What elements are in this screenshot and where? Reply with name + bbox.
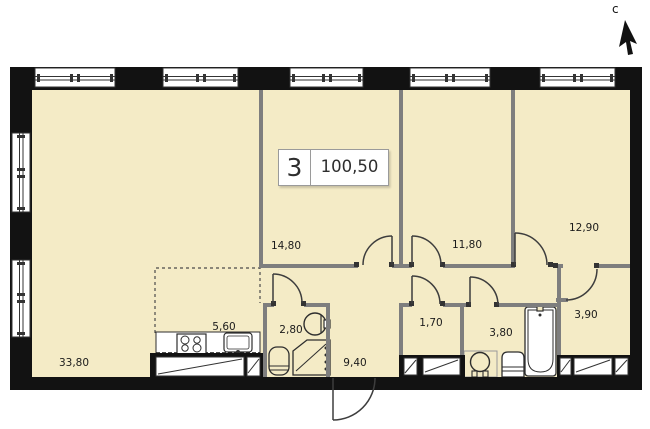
- window: [540, 68, 615, 87]
- wall-left: [10, 67, 32, 390]
- room-area-label-hallway: 3,90: [574, 309, 597, 321]
- room-area-label-bedroom-1: 14,80: [271, 240, 301, 252]
- room-area-label-closet: 1,70: [419, 317, 442, 329]
- floor-plan-drawing: [0, 0, 650, 429]
- stove-icon: [177, 334, 206, 354]
- room-area-label-wc: 2,80: [279, 324, 302, 336]
- room-area-label-kitchen: 5,60: [212, 321, 235, 333]
- window: [410, 68, 490, 87]
- wall-bottom: [10, 377, 642, 390]
- floor-plan: 33,80 5,60 14,80 11,80 12,90 2,80 9,40 1…: [0, 0, 650, 429]
- room-area-label-corridor: 9,40: [343, 357, 366, 369]
- bathtub-icon: [525, 306, 556, 376]
- north-arrow-icon: [619, 20, 637, 55]
- room-area-label-living-room: 33,80: [59, 357, 89, 369]
- toilet-icon: [269, 347, 289, 375]
- window: [290, 68, 363, 87]
- apartment-number: 3: [279, 150, 311, 185]
- apartment-info-box: 3 100,50: [278, 149, 389, 186]
- window: [12, 133, 30, 212]
- wall-right: [630, 67, 642, 390]
- washing-machine-icon: [502, 352, 524, 377]
- apartment-total-area: 100,50: [311, 150, 388, 185]
- room-area-label-bathroom: 3,80: [489, 327, 512, 339]
- room-area-label-bedroom-2: 11,80: [452, 239, 482, 251]
- window: [163, 68, 238, 87]
- north-label: с: [612, 2, 619, 16]
- window: [12, 260, 30, 337]
- room-area-label-bedroom-3: 12,90: [569, 222, 599, 234]
- window: [35, 68, 115, 87]
